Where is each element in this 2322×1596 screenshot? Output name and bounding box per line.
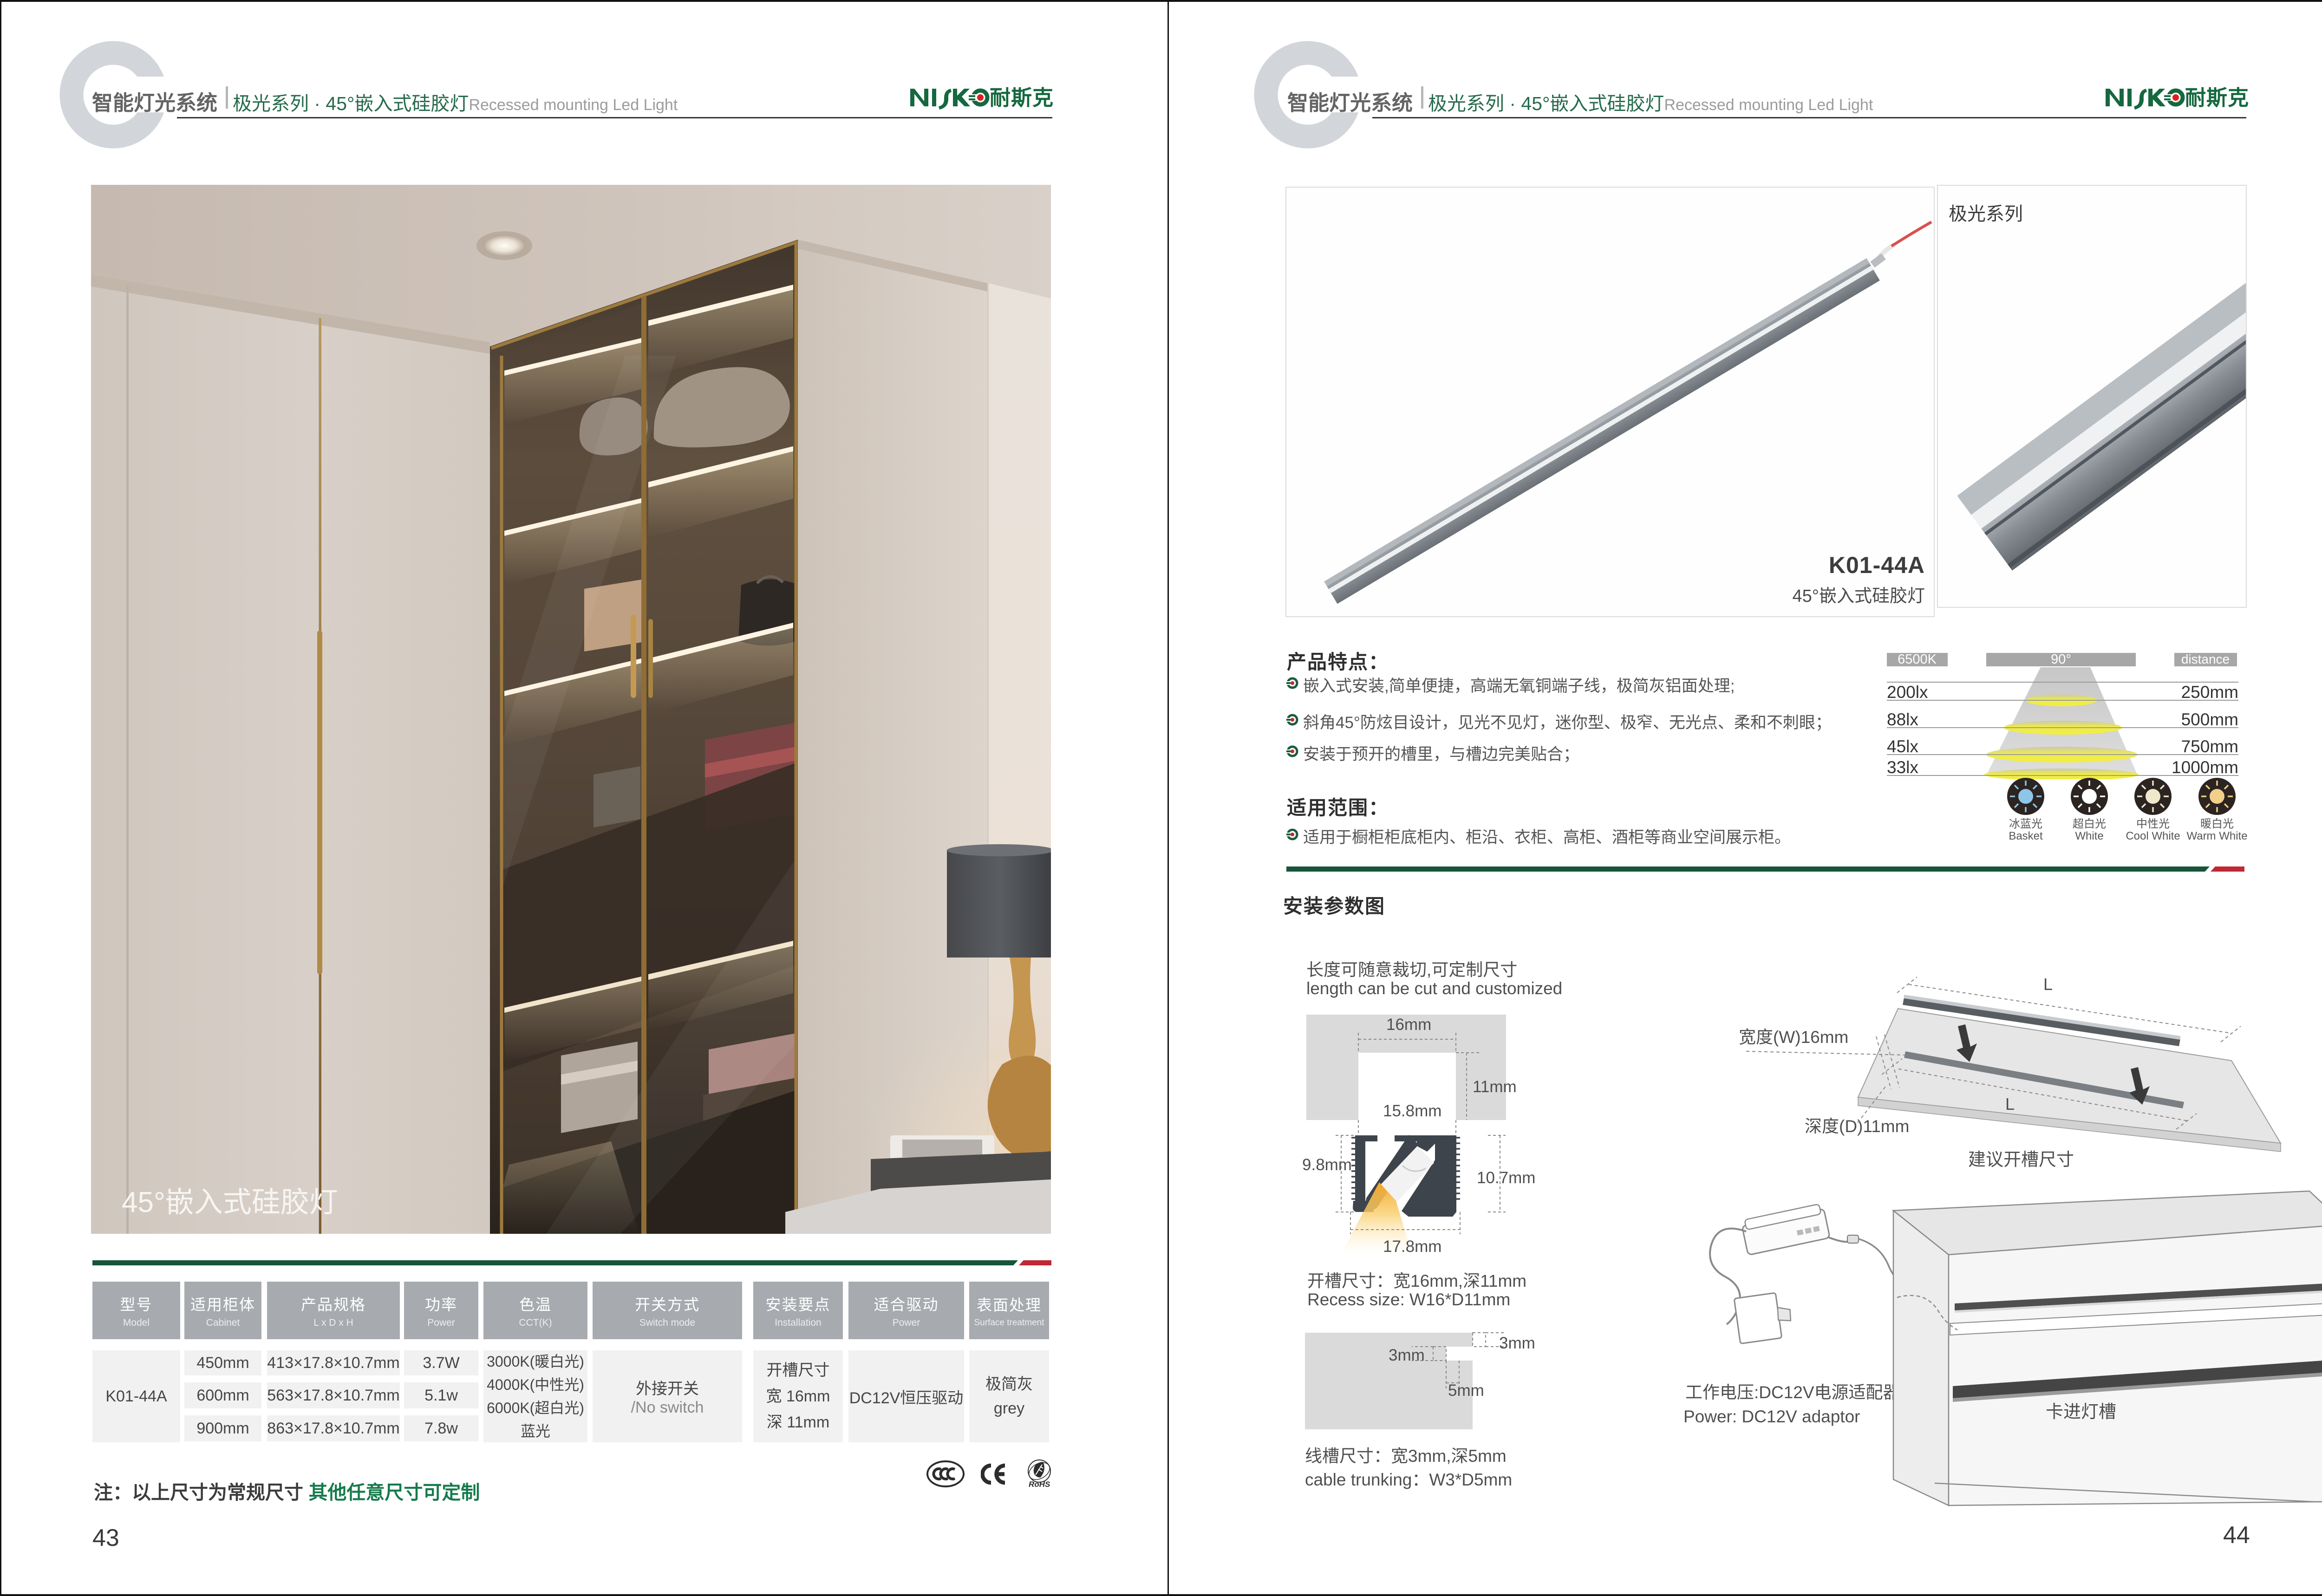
svg-text:耐斯克: 耐斯克	[2185, 86, 2249, 110]
svg-text:Warm White: Warm White	[2186, 830, 2247, 842]
svg-text:1000mm: 1000mm	[2172, 758, 2238, 777]
svg-text:45°嵌入式硅胶灯: 45°嵌入式硅胶灯	[122, 1186, 338, 1218]
svg-text:16mm: 16mm	[1386, 1016, 1431, 1034]
svg-text:建议开槽尺寸: 建议开槽尺寸	[1968, 1150, 2074, 1170]
svg-text:250mm: 250mm	[2181, 683, 2238, 702]
svg-text:9.8mm: 9.8mm	[1302, 1156, 1352, 1174]
svg-text:33lx: 33lx	[1887, 758, 1918, 777]
svg-text:中性光: 中性光	[2136, 818, 2170, 830]
svg-text:45lx: 45lx	[1887, 737, 1918, 756]
svg-text:暖白光: 暖白光	[2200, 818, 2234, 830]
svg-text:15.8mm: 15.8mm	[1383, 1102, 1441, 1120]
svg-text:L: L	[2043, 975, 2053, 994]
svg-text:11mm: 11mm	[1473, 1078, 1517, 1096]
svg-text:L: L	[2005, 1094, 2015, 1114]
svg-text:卡进灯槽: 卡进灯槽	[2046, 1402, 2116, 1422]
svg-text:500mm: 500mm	[2181, 710, 2238, 729]
svg-text:750mm: 750mm	[2181, 737, 2238, 756]
svg-text:冰蓝光: 冰蓝光	[2009, 818, 2042, 830]
svg-text:17.8mm: 17.8mm	[1383, 1238, 1441, 1256]
svg-text:White: White	[2075, 830, 2103, 842]
svg-text:深度(D)11mm: 深度(D)11mm	[1805, 1117, 1909, 1136]
svg-text:3mm: 3mm	[1499, 1334, 1535, 1352]
svg-text:200lx: 200lx	[1887, 683, 1928, 702]
svg-text:distance: distance	[2181, 652, 2230, 666]
svg-text:6500K: 6500K	[1898, 652, 1937, 667]
svg-text:RoHS: RoHS	[1029, 1480, 1050, 1489]
svg-text:88lx: 88lx	[1887, 710, 1918, 729]
svg-text:5mm: 5mm	[1448, 1381, 1484, 1400]
svg-text:耐斯克: 耐斯克	[990, 86, 1053, 110]
svg-text:10.7mm: 10.7mm	[1477, 1169, 1535, 1187]
svg-text:Basket: Basket	[2009, 830, 2043, 842]
svg-text:90°: 90°	[2051, 652, 2071, 667]
svg-text:3mm: 3mm	[1389, 1346, 1425, 1364]
svg-text:Cool White: Cool White	[2126, 830, 2180, 842]
svg-text:宽度(W)16mm: 宽度(W)16mm	[1739, 1028, 1848, 1047]
svg-text:超白光: 超白光	[2073, 818, 2106, 830]
